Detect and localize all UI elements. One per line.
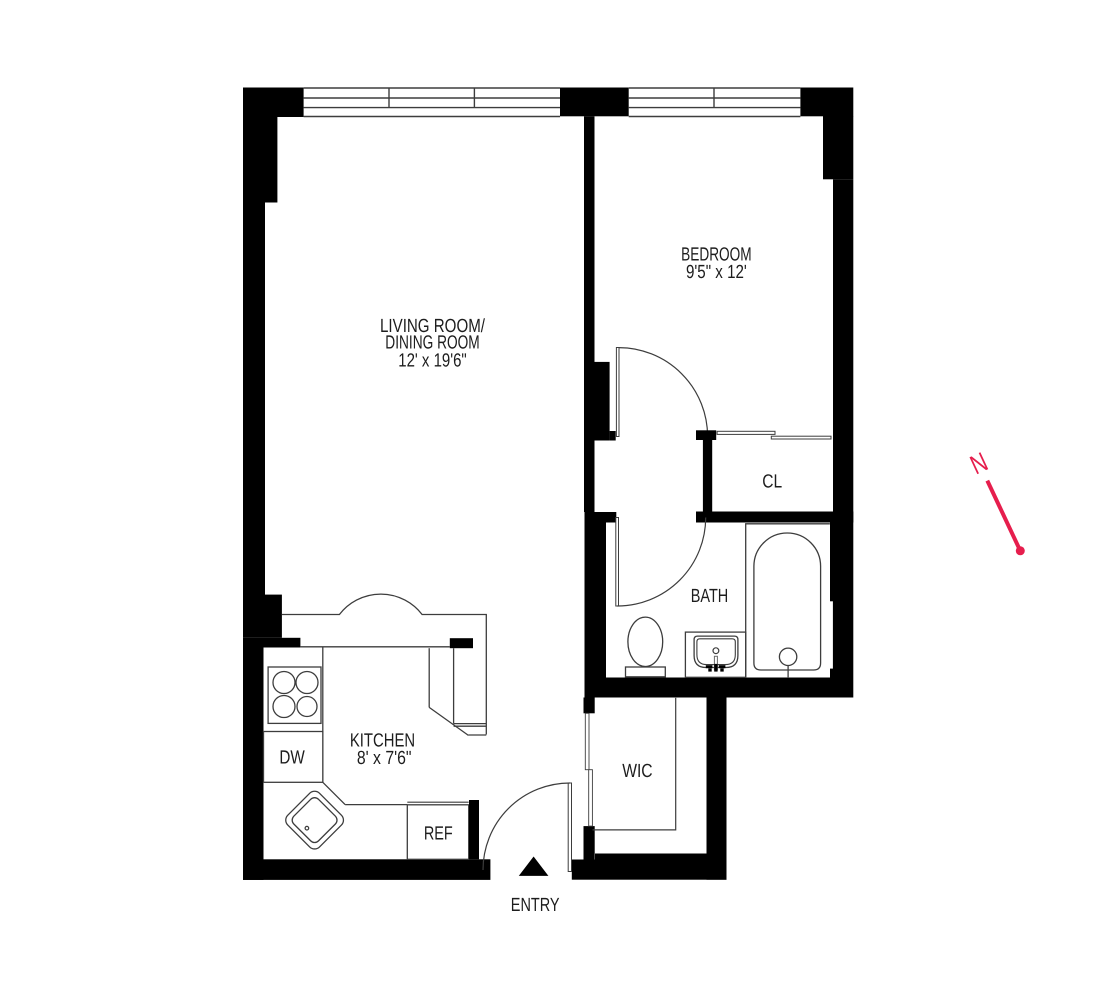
svg-text:WIC: WIC xyxy=(622,761,652,782)
svg-text:DW: DW xyxy=(279,748,304,769)
svg-text:ENTRY: ENTRY xyxy=(511,895,560,916)
svg-text:CL: CL xyxy=(762,472,782,493)
svg-text:9'5" x 12': 9'5" x 12' xyxy=(686,262,747,283)
svg-text:8' x 7'6": 8' x 7'6" xyxy=(357,748,412,769)
svg-text:REF: REF xyxy=(424,823,453,844)
svg-text:12' x 19'6": 12' x 19'6" xyxy=(398,350,467,371)
svg-text:BATH: BATH xyxy=(691,586,729,607)
